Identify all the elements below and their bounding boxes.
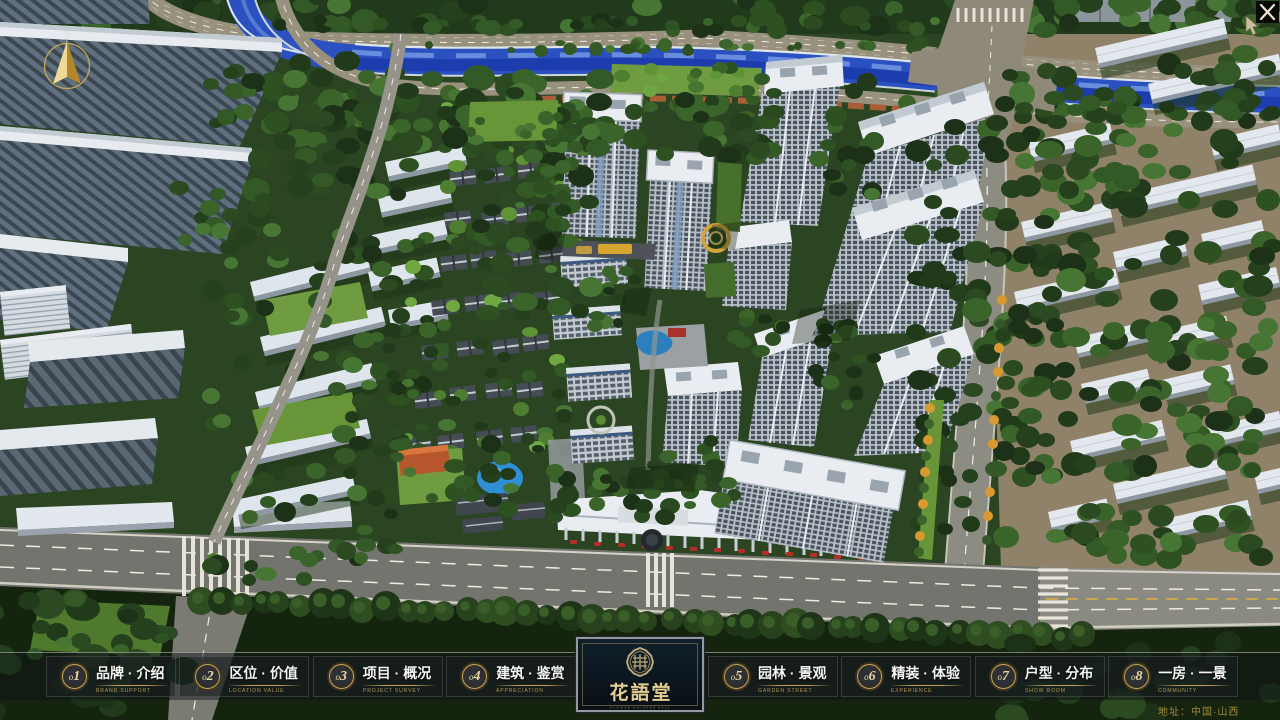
svg-text:N: N xyxy=(64,29,70,38)
